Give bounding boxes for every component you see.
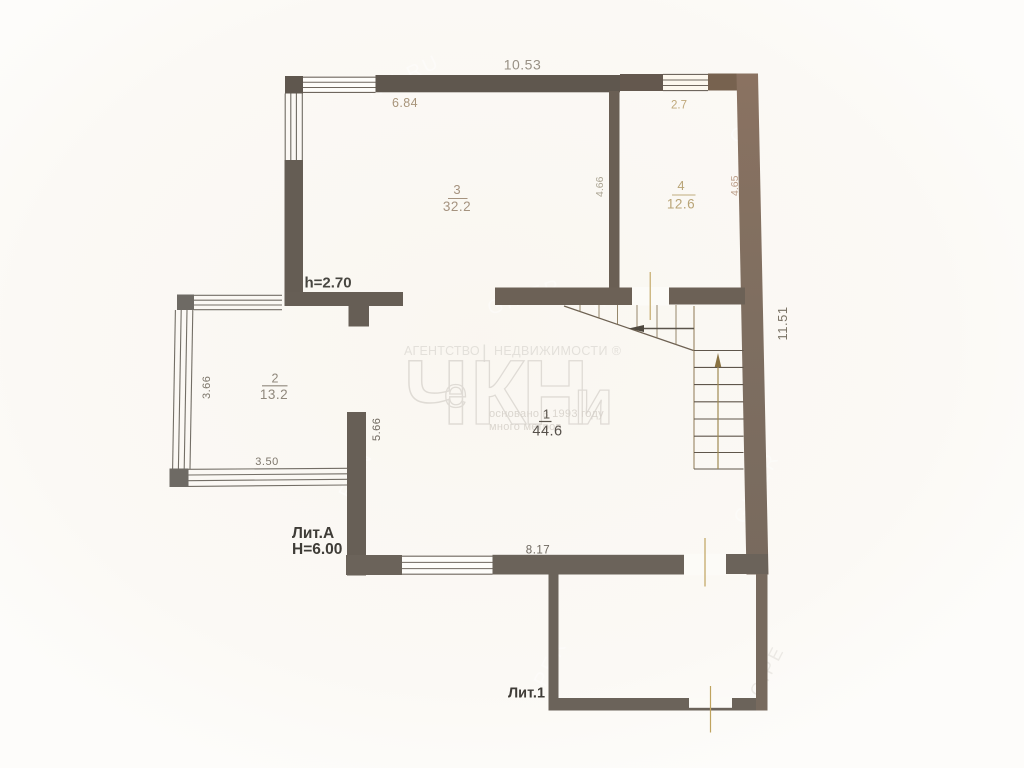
svg-text:h=2.70: h=2.70 <box>304 275 351 292</box>
svg-text:2: 2 <box>272 372 279 386</box>
svg-text:4.66: 4.66 <box>594 176 606 197</box>
svg-text:44.6: 44.6 <box>532 424 562 440</box>
svg-text:3.50: 3.50 <box>255 456 278 468</box>
svg-text:6.84: 6.84 <box>392 96 418 110</box>
svg-text:8.17: 8.17 <box>526 545 550 557</box>
svg-text:Лит.1: Лит.1 <box>508 686 545 702</box>
svg-text:13.2: 13.2 <box>260 387 288 402</box>
svg-text:и: и <box>574 366 613 438</box>
svg-text:H=6.00: H=6.00 <box>292 541 342 558</box>
svg-text:11.51: 11.51 <box>775 306 790 340</box>
svg-text:12.6: 12.6 <box>667 197 695 212</box>
svg-text:3: 3 <box>453 182 460 197</box>
svg-text:1: 1 <box>543 407 550 422</box>
svg-text:4.65: 4.65 <box>729 175 741 196</box>
svg-text:Лит.А: Лит.А <box>292 525 334 542</box>
svg-text:5.66: 5.66 <box>371 418 383 441</box>
svg-text:3.66: 3.66 <box>201 376 213 399</box>
svg-text:е: е <box>444 369 467 416</box>
svg-text:2.7: 2.7 <box>671 100 687 112</box>
svg-text:4: 4 <box>677 178 684 193</box>
svg-text:32.2: 32.2 <box>443 199 471 214</box>
svg-text:10.53: 10.53 <box>504 57 542 73</box>
